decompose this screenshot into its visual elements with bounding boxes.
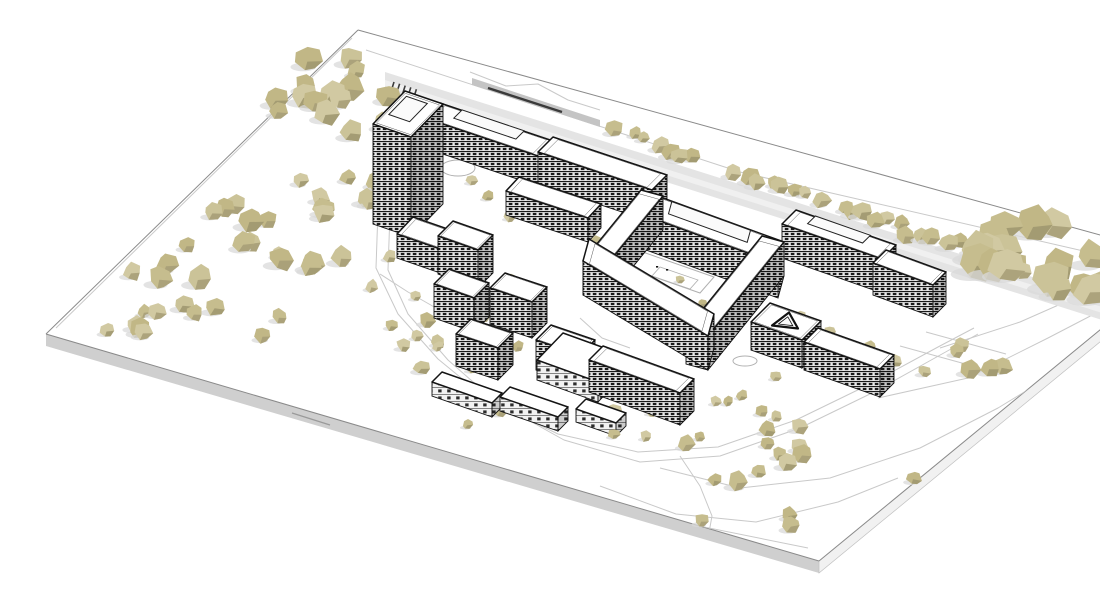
courtyard-speck (656, 266, 658, 268)
building-tower (373, 91, 443, 237)
masterplan-axonometric-illustration (40, 16, 1100, 599)
site-plan-svg (40, 16, 1100, 599)
courtyard-speck (666, 269, 668, 271)
facade-shade (373, 124, 411, 237)
tree (290, 47, 323, 71)
